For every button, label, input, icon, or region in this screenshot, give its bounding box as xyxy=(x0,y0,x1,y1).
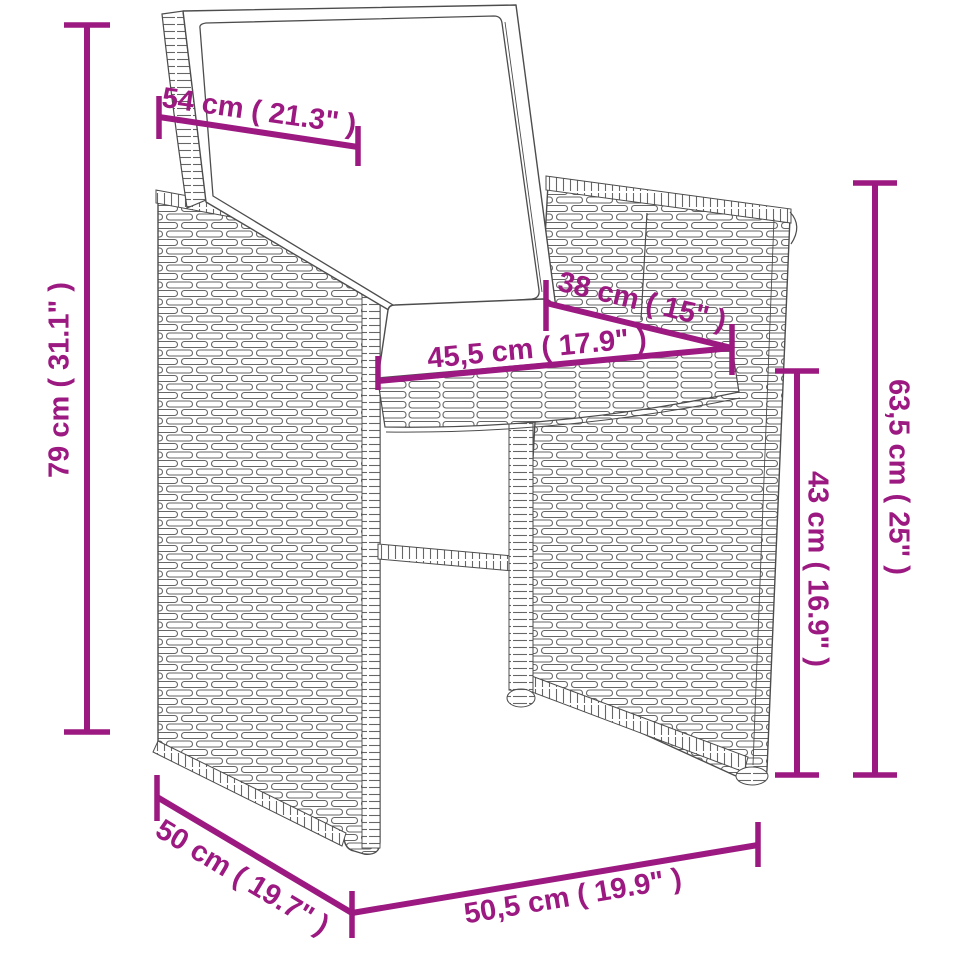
rear-right-foot xyxy=(507,689,535,707)
left-panel-corner-post xyxy=(362,240,380,848)
rear-right-leg xyxy=(509,412,533,692)
dim-label-overall-height: 79 cm ( 31.1" ) xyxy=(46,282,75,478)
dim-label-armrest-height: 63,5 cm ( 25" ) xyxy=(884,379,913,575)
right-arm-foot xyxy=(736,767,768,785)
stretcher-bar xyxy=(378,544,513,571)
left-side-panel xyxy=(153,190,381,854)
dim-label-seat-height: 43 cm ( 16.9" ) xyxy=(803,471,832,667)
right-arm-panel xyxy=(516,176,797,785)
under-seat xyxy=(378,412,535,707)
dimension-diagram: 54 cm ( 21.3" ) 79 cm ( 31.1" ) 38 cm ( … xyxy=(0,0,960,960)
